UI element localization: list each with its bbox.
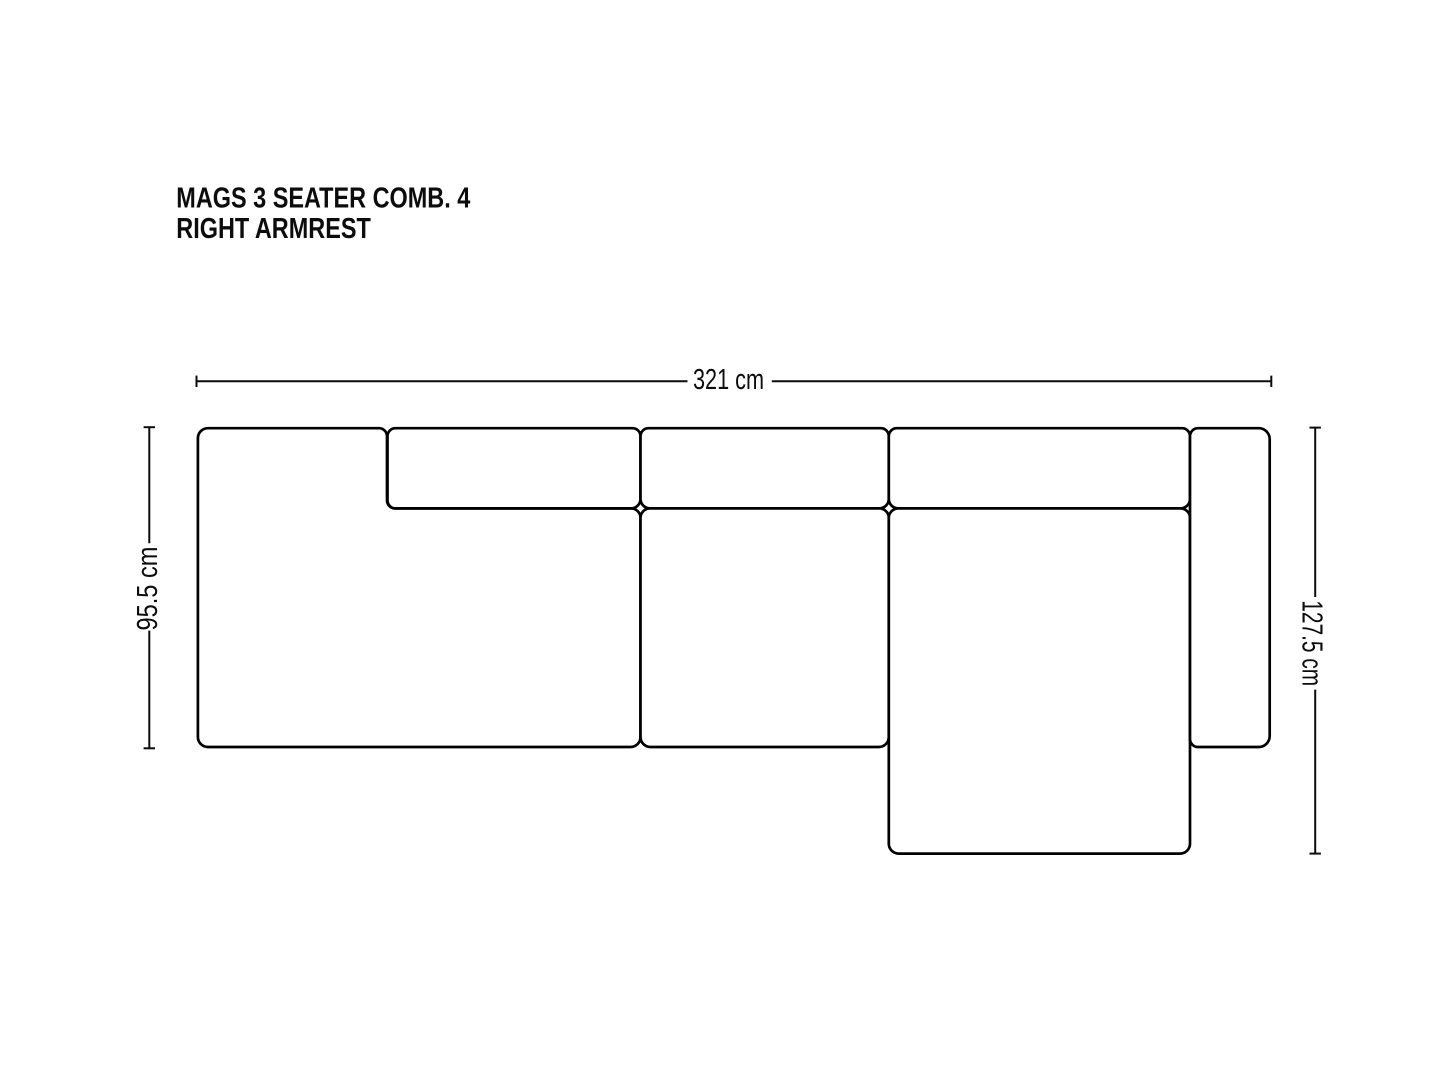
svg-text:MAGS 3 SEATER COMB. 4: MAGS 3 SEATER COMB. 4 xyxy=(176,183,470,215)
svg-text:321 cm: 321 cm xyxy=(693,364,764,396)
svg-text:RIGHT ARMREST: RIGHT ARMREST xyxy=(176,213,371,245)
svg-text:127.5 cm: 127.5 cm xyxy=(1296,600,1328,686)
svg-text:95.5 cm: 95.5 cm xyxy=(132,547,164,631)
